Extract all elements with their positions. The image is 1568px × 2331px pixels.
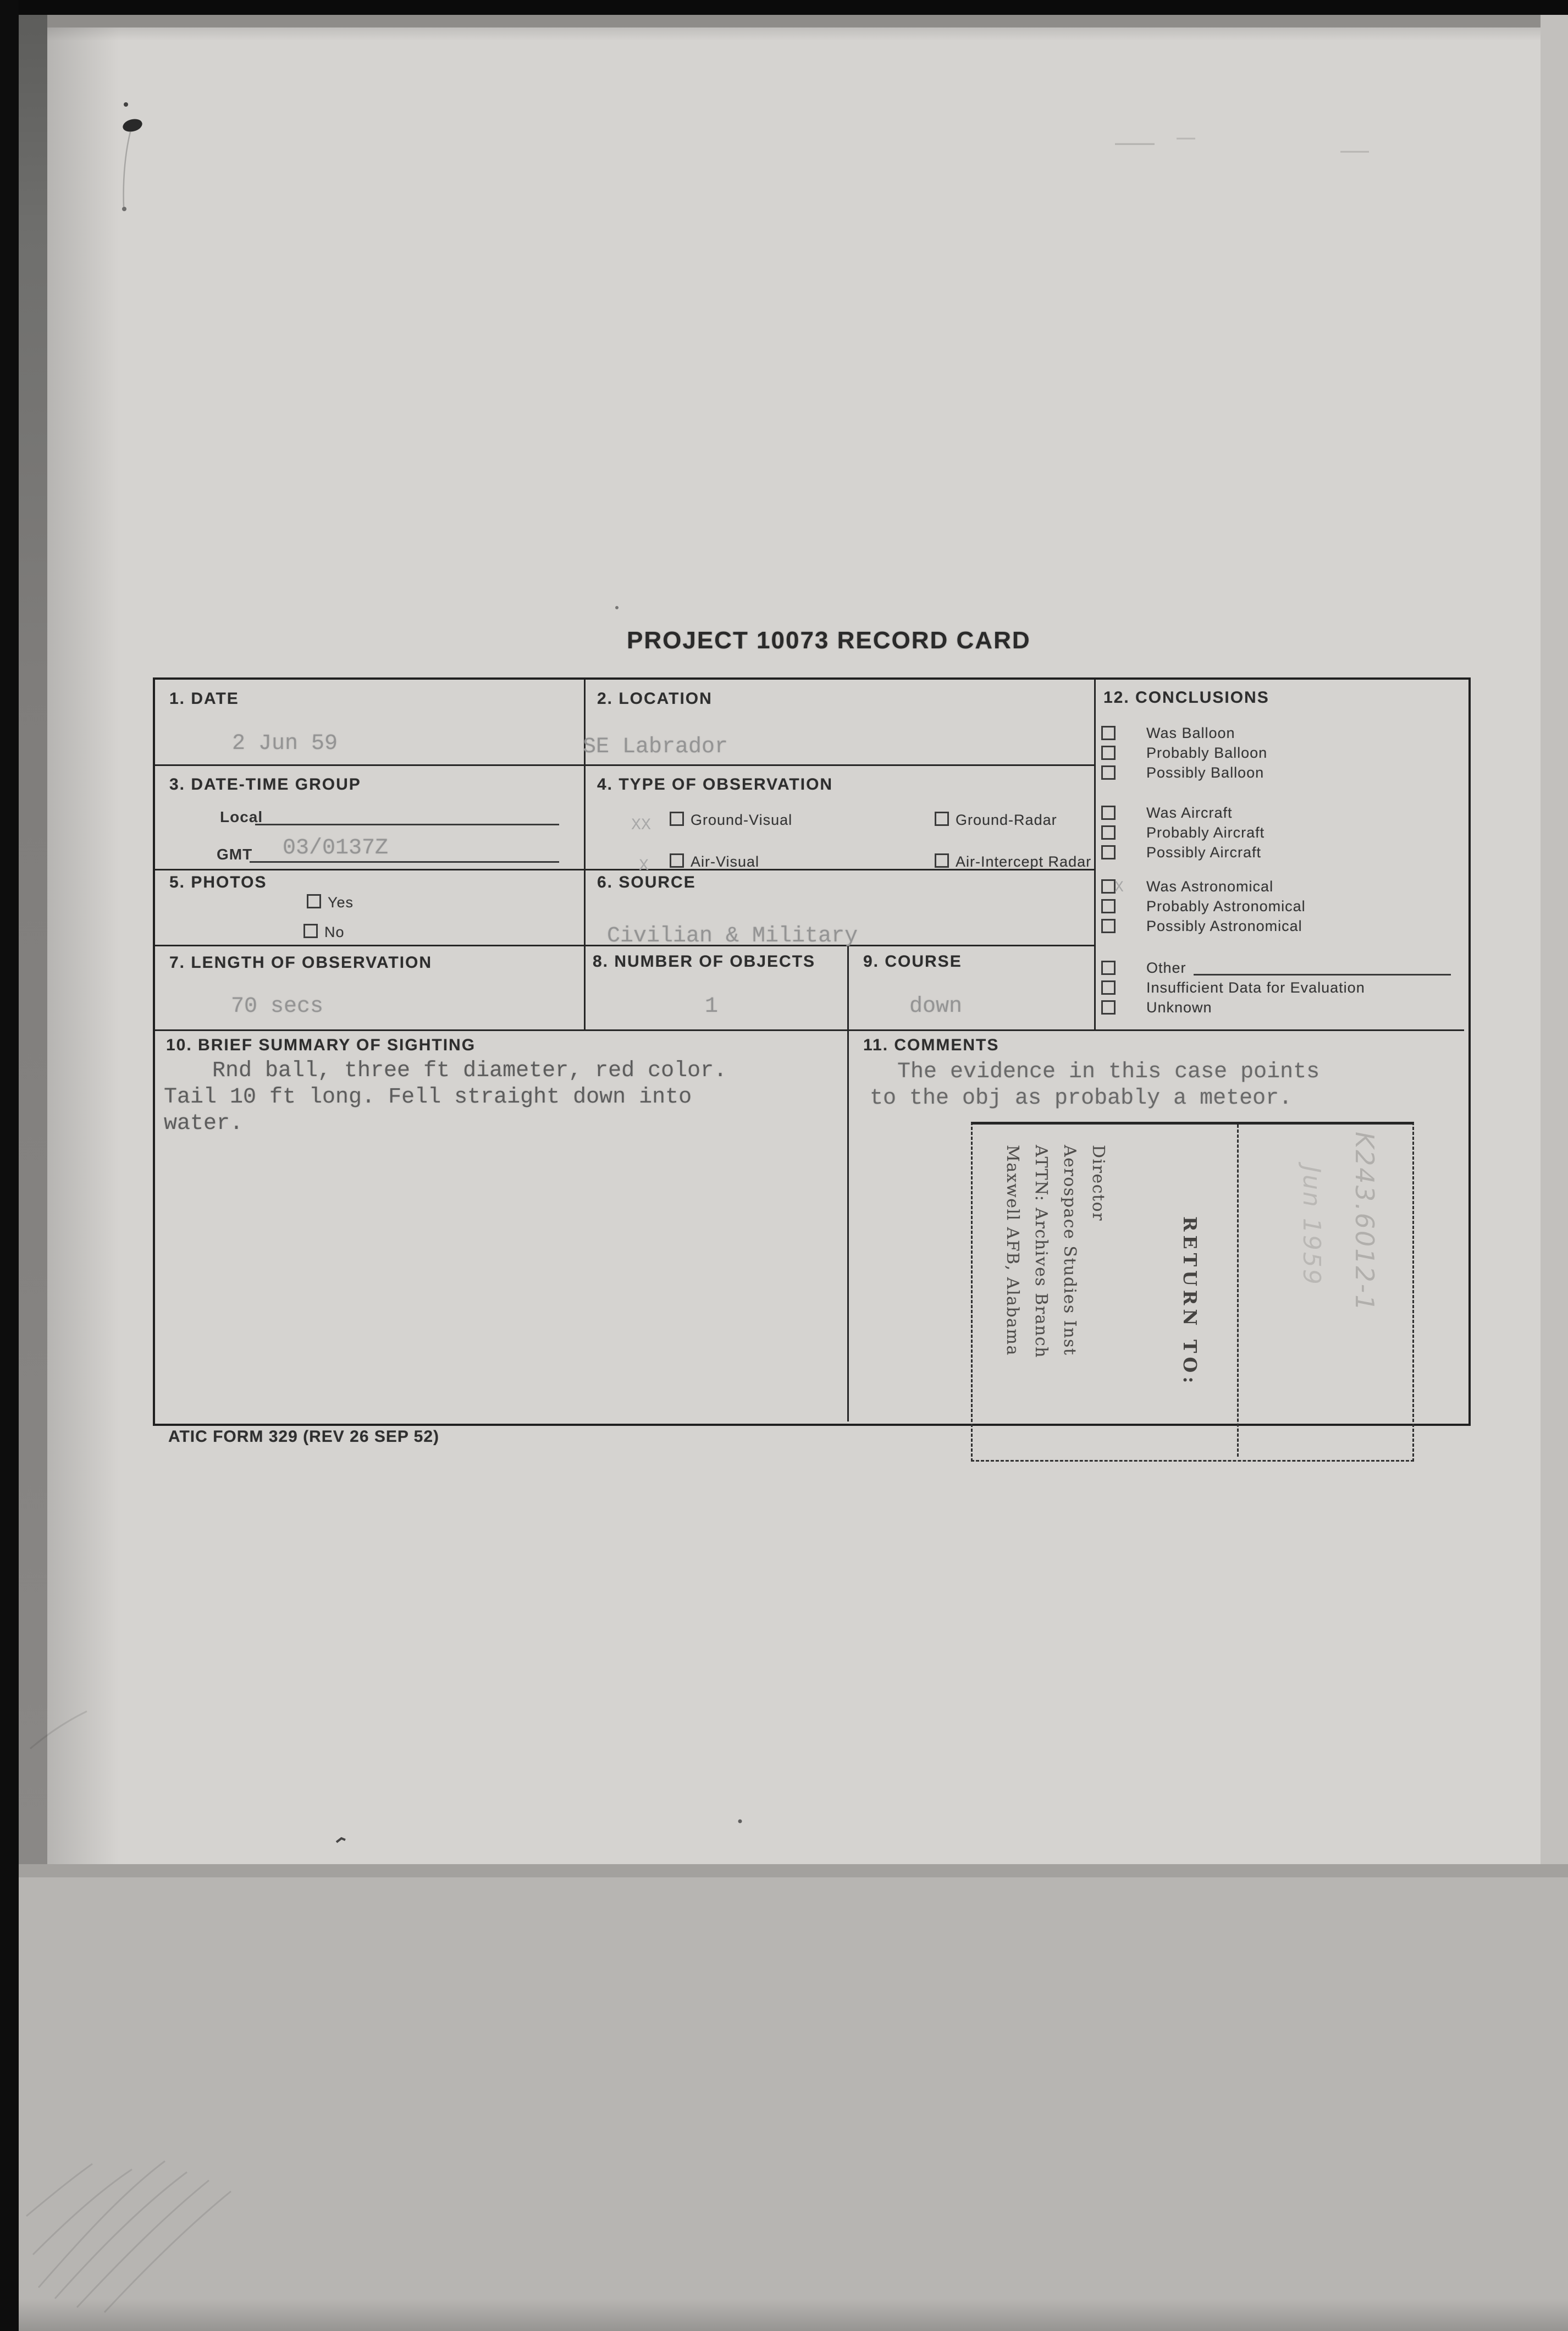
ground-radar-label: Ground-Radar [956, 812, 1057, 829]
paper-right-margin [1541, 15, 1568, 1864]
date-value: 2 Jun 59 [232, 731, 338, 756]
paper-bottom-seam [19, 1864, 1568, 1877]
location-label: 2. LOCATION [597, 690, 713, 708]
possibly-astronomical-checkbox [1101, 919, 1116, 933]
length-of-observation-label: 7. LENGTH OF OBSERVATION [169, 954, 432, 972]
ground-visual-label: Ground-Visual [691, 812, 792, 829]
ground-visual-checkbox [670, 812, 684, 826]
air-visual-checkbox [670, 853, 684, 868]
location-value: SE Labrador [583, 735, 728, 759]
summary-text: Rnd ball, three ft diameter, red color. … [164, 1058, 840, 1137]
comments-text: The evidence in this case points to the … [870, 1059, 1453, 1112]
was-balloon-label: Was Balloon [1146, 725, 1235, 742]
column-divider [1094, 680, 1096, 1031]
source-value: Civilian & Military [607, 924, 858, 949]
probably-balloon-checkbox [1101, 746, 1116, 760]
handwritten-date: Jun 1959 [1298, 1166, 1326, 1347]
gmt-label: GMT [217, 846, 252, 863]
column-divider [584, 680, 586, 1031]
scan-top-border [0, 0, 1568, 15]
course-value: down [909, 994, 962, 1019]
type-of-observation-label: 4. TYPE OF OBSERVATION [597, 775, 833, 794]
source-label: 6. SOURCE [597, 873, 696, 892]
unknown-label: Unknown [1146, 999, 1212, 1016]
photos-yes-checkbox [307, 894, 321, 908]
probably-aircraft-label: Probably Aircraft [1146, 824, 1265, 841]
other-checkbox [1101, 961, 1116, 975]
course-label: 9. COURSE [863, 952, 962, 971]
photos-no-label: No [324, 924, 345, 941]
stamp-address: Director Aerospace Studies Inst ATTN: Ar… [998, 1145, 1112, 1409]
paper-left-shadow [47, 27, 119, 1864]
bottom-edge-shadow [19, 2299, 1568, 2331]
was-balloon-checkbox [1101, 726, 1116, 740]
row-divider [155, 1029, 1464, 1031]
was-astronomical-mark: X [1114, 879, 1124, 896]
possibly-aircraft-checkbox [1101, 845, 1116, 859]
date-label: 1. DATE [169, 690, 239, 708]
backing-sheet-bottom [19, 1864, 1568, 2331]
page-title: PROJECT 10073 RECORD CARD [627, 627, 1031, 654]
probably-balloon-label: Probably Balloon [1146, 745, 1267, 762]
stamp-inner-divider [1237, 1125, 1239, 1457]
paper-top-shadow [47, 27, 1541, 41]
insufficient-data-checkbox [1101, 980, 1116, 995]
ground-radar-checkbox [935, 812, 949, 826]
gmt-underline [250, 861, 559, 863]
number-of-objects-label: 8. NUMBER OF OBJECTS [593, 952, 815, 971]
was-astronomical-checkbox [1101, 879, 1116, 894]
possibly-aircraft-label: Possibly Aircraft [1146, 844, 1261, 861]
scanned-record-card-page: PROJECT 10073 RECORD CARD 1. DATE 2 Jun … [0, 0, 1568, 2331]
length-of-observation-value: 70 secs [231, 994, 323, 1019]
comments-label: 11. COMMENTS [863, 1036, 999, 1055]
scan-left-border [0, 0, 19, 2331]
stamp-return-to: RETURN TO: [1179, 1216, 1201, 1381]
other-underline [1194, 974, 1451, 976]
was-astronomical-label: Was Astronomical [1146, 878, 1273, 895]
column-divider [847, 945, 849, 1421]
row-divider [155, 869, 1094, 870]
gmt-value: 03/0137Z [283, 836, 388, 861]
was-aircraft-label: Was Aircraft [1146, 804, 1233, 822]
row-divider [155, 764, 1094, 766]
possibly-balloon-checkbox [1101, 765, 1116, 780]
air-visual-label: Air-Visual [691, 853, 759, 870]
probably-astronomical-checkbox [1101, 899, 1116, 913]
photos-yes-label: Yes [328, 894, 354, 911]
air-intercept-radar-label: Air-Intercept Radar [956, 853, 1091, 870]
possibly-balloon-label: Possibly Balloon [1146, 764, 1264, 781]
probably-aircraft-checkbox [1101, 825, 1116, 840]
ground-visual-mark: XX [631, 816, 651, 835]
date-time-group-label: 3. DATE-TIME GROUP [169, 775, 361, 794]
number-of-objects-value: 1 [705, 994, 718, 1019]
scan-edge-shadow [19, 15, 47, 1864]
form-number: ATIC FORM 329 (REV 26 SEP 52) [168, 1428, 439, 1446]
handwritten-file-reference: K243.6012-1 [1350, 1132, 1379, 1352]
possibly-astronomical-label: Possibly Astronomical [1146, 918, 1302, 935]
was-aircraft-checkbox [1101, 806, 1116, 820]
summary-label: 10. BRIEF SUMMARY OF SIGHTING [166, 1036, 476, 1055]
other-label: Other [1146, 960, 1186, 977]
conclusions-label: 12. CONCLUSIONS [1103, 688, 1269, 707]
local-underline [255, 824, 559, 825]
insufficient-data-label: Insufficient Data for Evaluation [1146, 979, 1365, 996]
air-intercept-radar-checkbox [935, 853, 949, 868]
probably-astronomical-label: Probably Astronomical [1146, 898, 1306, 915]
photos-label: 5. PHOTOS [169, 873, 267, 892]
air-visual-mark: X [639, 857, 649, 875]
photos-no-checkbox [303, 924, 318, 938]
unknown-checkbox [1101, 1000, 1116, 1015]
